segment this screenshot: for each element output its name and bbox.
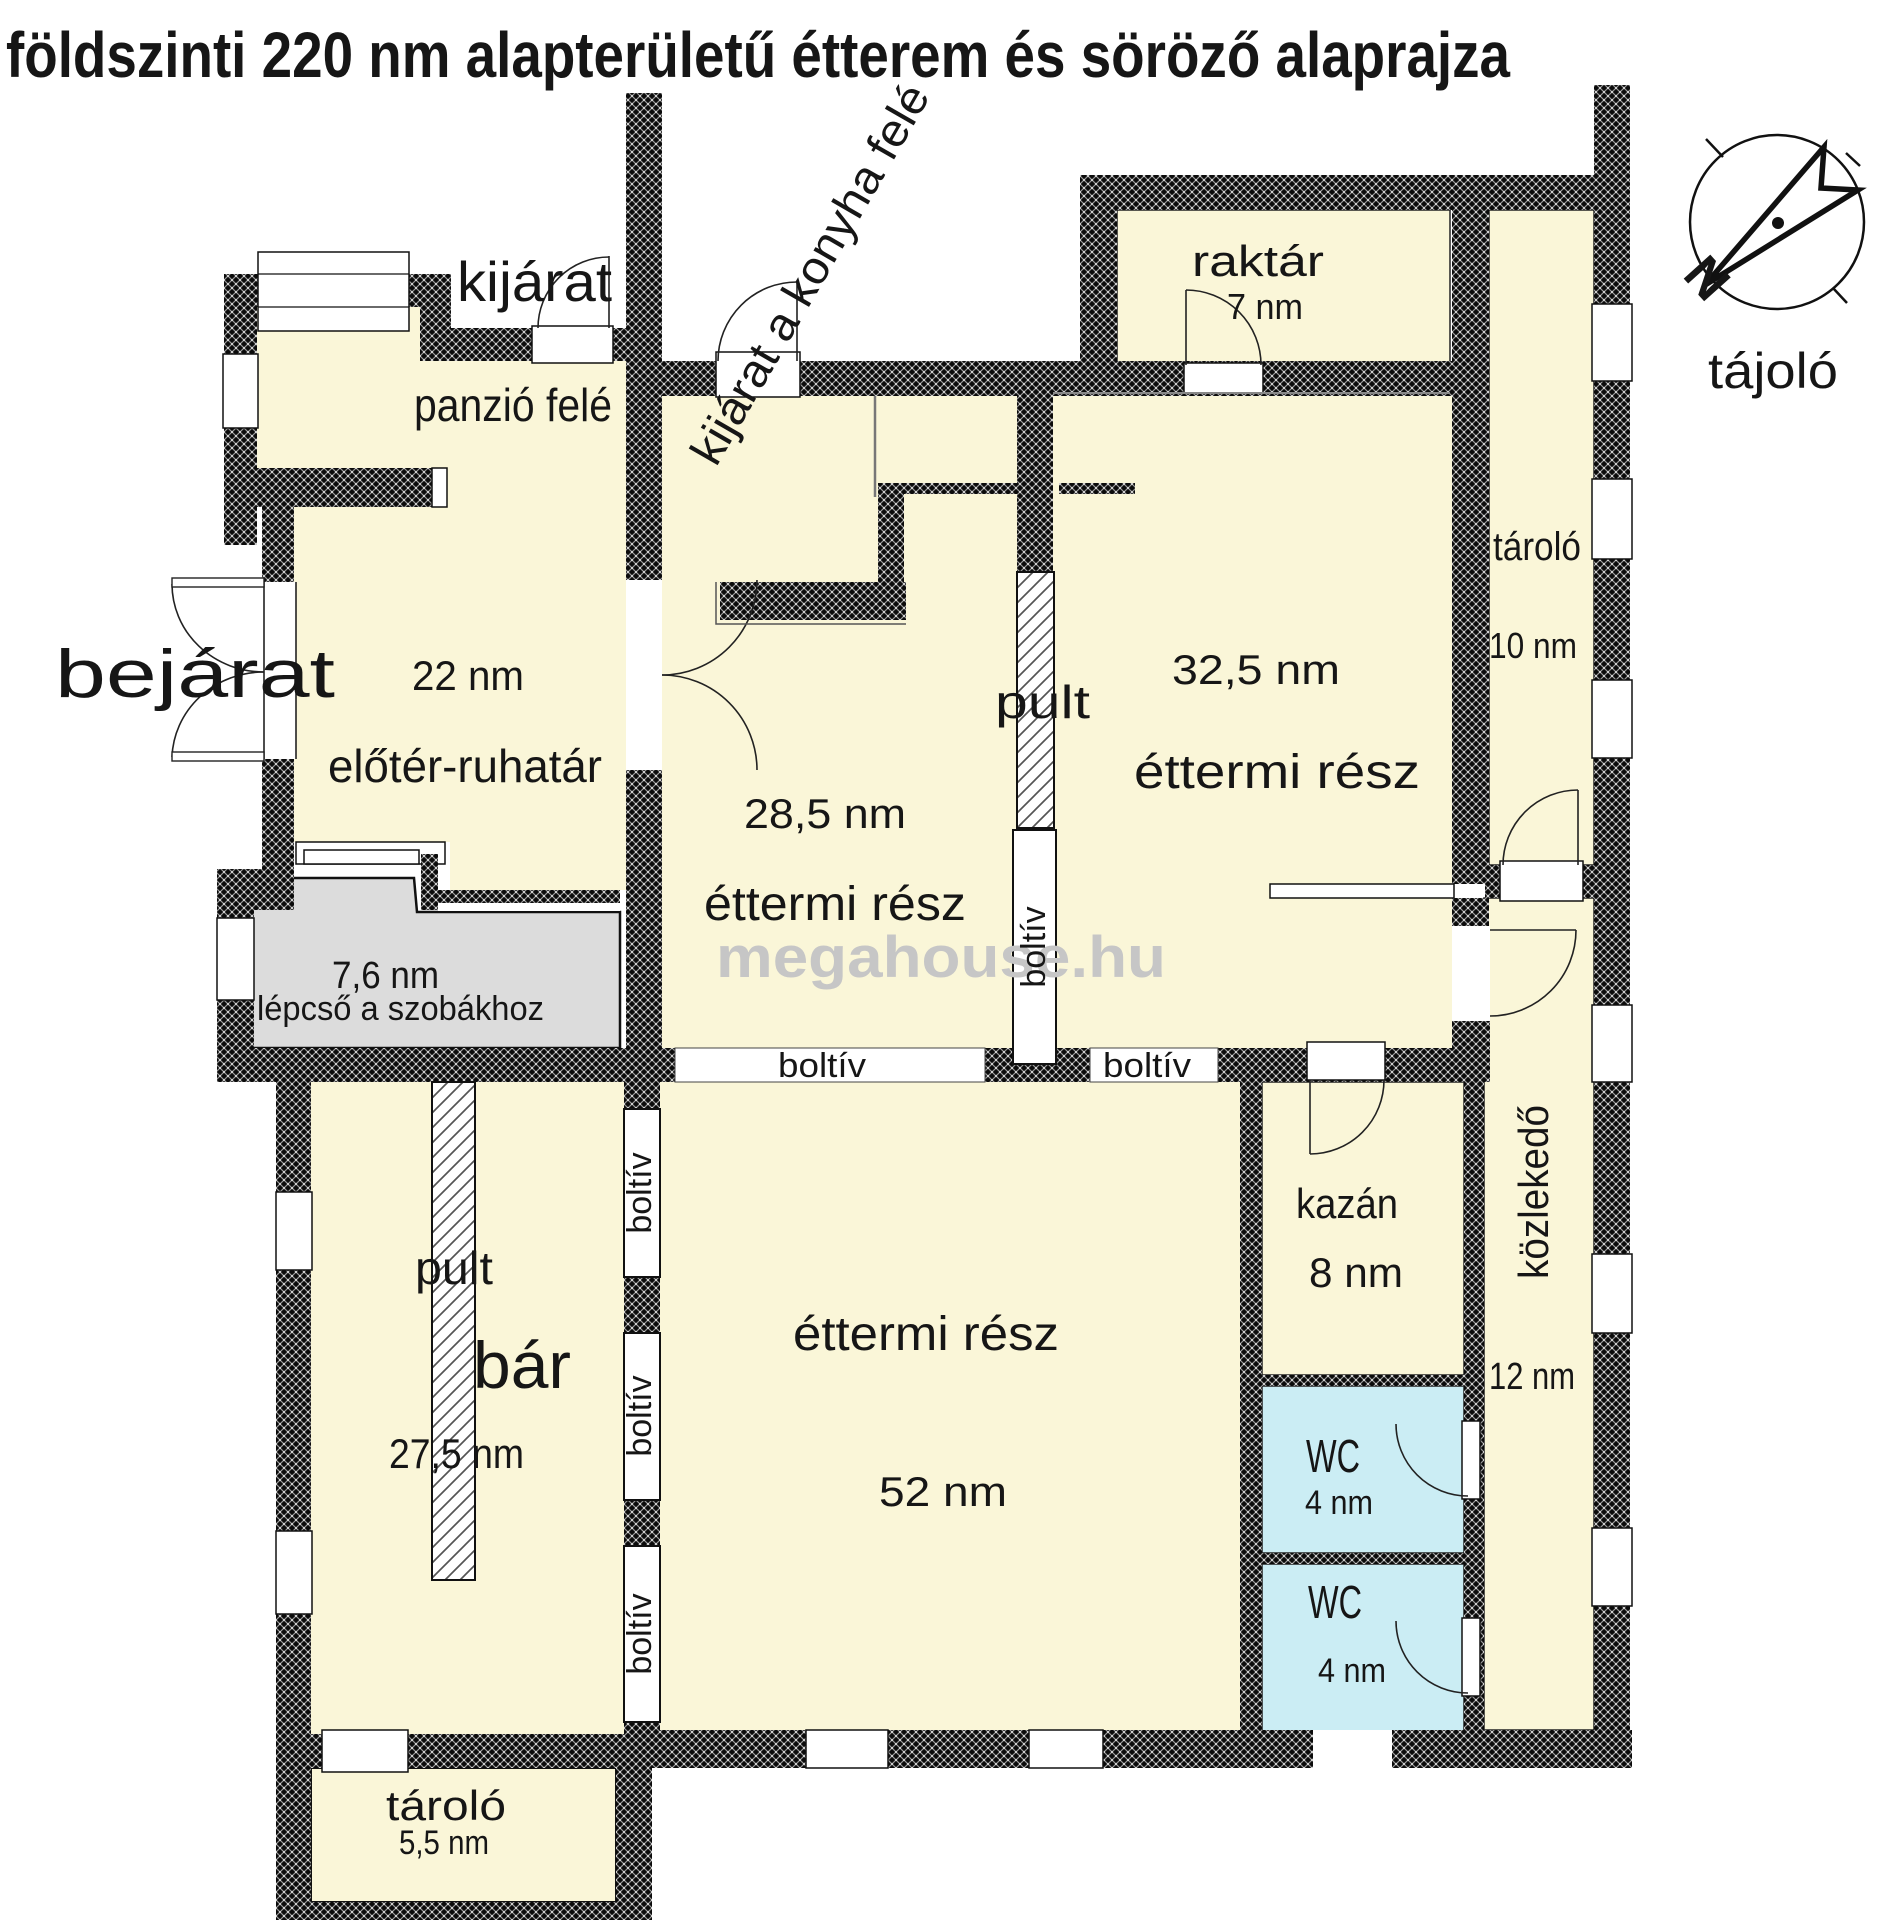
svg-text:tájoló: tájoló: [1708, 343, 1838, 399]
svg-text:7 nm: 7 nm: [1227, 286, 1303, 327]
svg-text:megahouse.hu: megahouse.hu: [716, 925, 1166, 990]
svg-text:boltív: boltív: [621, 1375, 659, 1456]
svg-text:boltív: boltív: [621, 1593, 659, 1674]
svg-text:raktár: raktár: [1192, 237, 1324, 286]
svg-text:éttermi rész: éttermi rész: [1134, 746, 1420, 799]
svg-text:4 nm: 4 nm: [1318, 1652, 1386, 1690]
svg-text:boltív: boltív: [1015, 906, 1053, 987]
svg-text:boltív: boltív: [1103, 1047, 1191, 1085]
svg-text:boltív: boltív: [621, 1152, 659, 1233]
svg-text:lépcső a szobákhoz: lépcső a szobákhoz: [257, 990, 544, 1028]
svg-text:WC: WC: [1308, 1576, 1362, 1628]
svg-text:WC: WC: [1306, 1430, 1360, 1482]
svg-text:22 nm: 22 nm: [412, 652, 524, 699]
svg-text:12 nm: 12 nm: [1489, 1356, 1575, 1398]
svg-text:27,5 nm: 27,5 nm: [389, 1430, 524, 1477]
svg-text:éttermi rész: éttermi rész: [793, 1308, 1059, 1361]
svg-text:bár: bár: [473, 1328, 571, 1402]
svg-text:boltív: boltív: [778, 1047, 866, 1085]
svg-text:panzió felé: panzió felé: [414, 379, 612, 431]
svg-text:32,5 nm: 32,5 nm: [1172, 646, 1340, 693]
svg-text:8 nm: 8 nm: [1309, 1249, 1403, 1296]
svg-text:4 nm: 4 nm: [1305, 1484, 1373, 1522]
svg-text:kijárat: kijárat: [457, 250, 612, 313]
svg-text:tároló: tároló: [1493, 525, 1581, 569]
svg-text:28,5 nm: 28,5 nm: [744, 790, 906, 837]
svg-text:pult: pult: [415, 1242, 493, 1294]
svg-text:éttermi rész: éttermi rész: [704, 878, 966, 931]
svg-text:kazán: kazán: [1296, 1180, 1398, 1227]
svg-text:előtér-ruhatár: előtér-ruhatár: [328, 740, 602, 792]
svg-text:bejárat: bejárat: [55, 636, 335, 712]
svg-text:10 nm: 10 nm: [1489, 625, 1577, 666]
svg-text:földszinti 220 nm alapterületű: földszinti 220 nm alapterületű étterem é…: [6, 19, 1510, 91]
svg-text:közlekedő: közlekedő: [1510, 1105, 1557, 1279]
svg-text:5,5 nm: 5,5 nm: [399, 1824, 489, 1862]
svg-text:tároló: tároló: [386, 1782, 506, 1829]
svg-text:52 nm: 52 nm: [879, 1468, 1007, 1515]
svg-text:pult: pult: [995, 676, 1090, 728]
